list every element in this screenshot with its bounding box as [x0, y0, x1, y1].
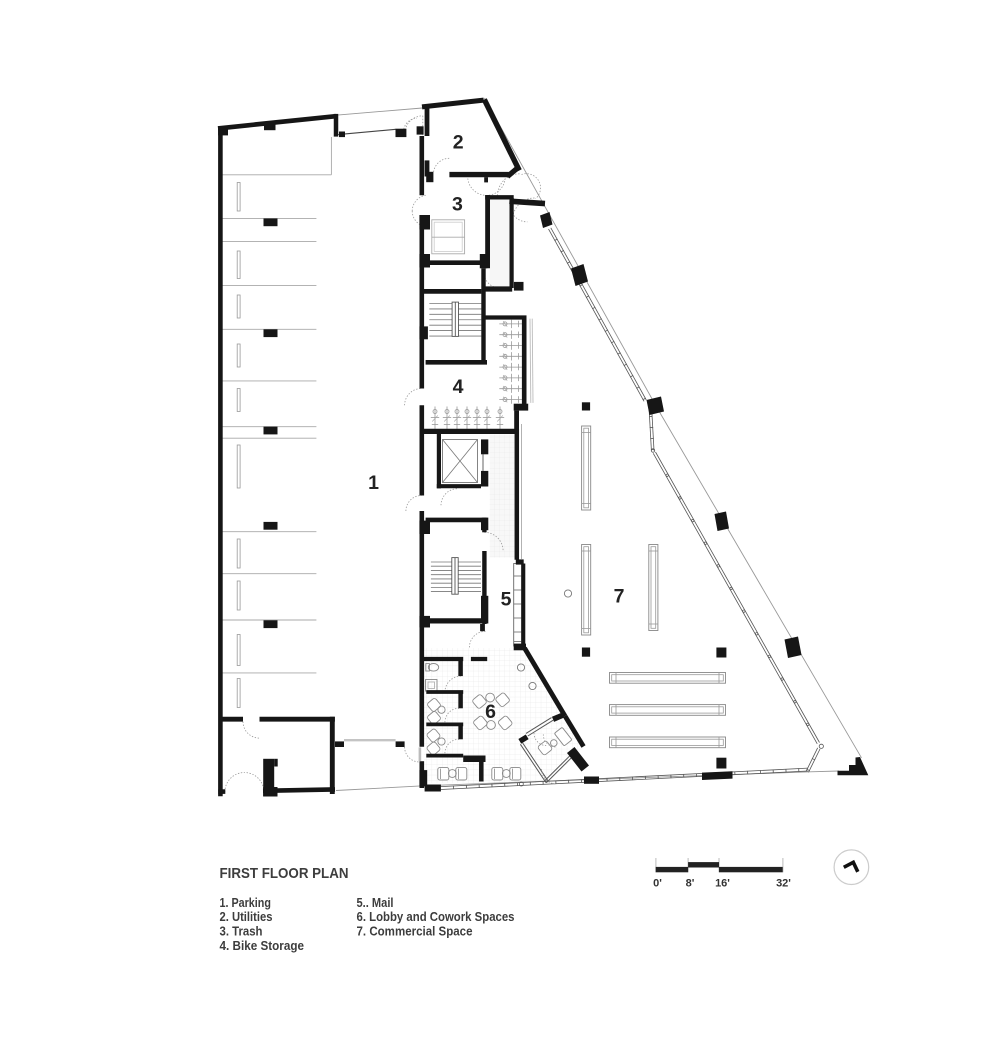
svg-text:2. Utilities: 2. Utilities	[220, 909, 273, 924]
svg-text:5: 5	[501, 588, 512, 610]
svg-text:7: 7	[614, 585, 625, 607]
svg-text:16': 16'	[715, 878, 730, 890]
svg-text:0': 0'	[653, 878, 662, 890]
svg-text:32': 32'	[776, 878, 791, 890]
svg-text:7. Commercial Space: 7. Commercial Space	[357, 924, 473, 939]
svg-text:4: 4	[453, 376, 464, 398]
svg-text:5.. Mail: 5.. Mail	[357, 895, 394, 910]
svg-text:6: 6	[485, 701, 496, 723]
svg-text:6. Lobby and Cowork Spaces: 6. Lobby and Cowork Spaces	[357, 909, 515, 924]
svg-text:4. Bike Storage: 4. Bike Storage	[220, 938, 305, 953]
svg-text:8': 8'	[686, 878, 695, 890]
svg-text:3. Trash: 3. Trash	[220, 924, 263, 939]
svg-text:FIRST FLOOR PLAN: FIRST FLOOR PLAN	[220, 866, 349, 882]
svg-text:3: 3	[452, 194, 463, 216]
svg-text:1. Parking: 1. Parking	[220, 895, 271, 910]
svg-text:1: 1	[368, 472, 379, 494]
svg-text:2: 2	[453, 131, 464, 153]
